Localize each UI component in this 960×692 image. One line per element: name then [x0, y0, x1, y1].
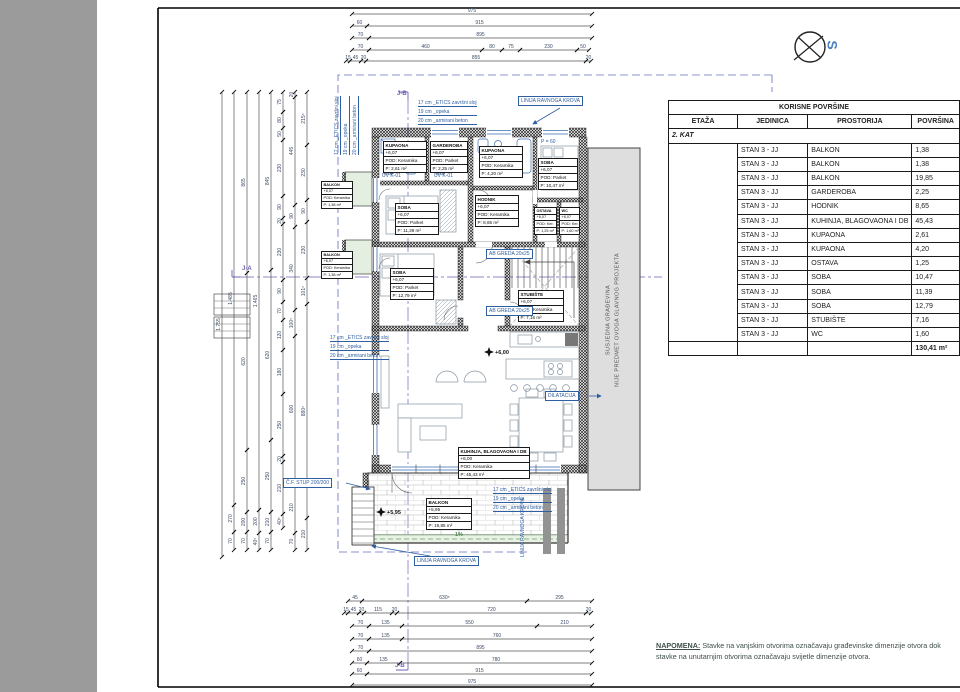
room-label: BALKON+5,95POD: KeramikaP: 19,85 m²: [426, 498, 472, 530]
callout-box: DILATACIJA: [545, 391, 579, 401]
north-letter: S: [825, 40, 841, 49]
room-label: SOBA+6,07POD: ParketP: 11,39 m²: [395, 203, 439, 235]
room-label: OSTAVA+6,07POD: Ker.P: 1,25 m²: [534, 207, 557, 235]
room-label: SOBA+6,07POD: ParketP: 12,79 m²: [390, 268, 434, 300]
neighbor-line2: NIJE PREDMET OVOGA GLAVNOG PROJEKTA: [614, 253, 623, 387]
page: 9756091570895704608075230501545208552045…: [0, 0, 960, 692]
room-label: GARDEROBA+6,07POD: ParketP: 2,25 m²: [430, 141, 468, 173]
callout-text: 17 cm _ETICS završni sloj19 cm _opeka20 …: [493, 487, 552, 514]
callout-box: AB GREDA 20x25: [486, 306, 533, 316]
floor-section-row: 2. KAT: [669, 129, 960, 143]
note: NAPOMENA: Stavke na vanjskim otvorima oz…: [656, 640, 956, 662]
callout-box: LINIJA RAVNOGA KROVA: [414, 556, 479, 566]
col-etaza: ETAŽA: [669, 115, 738, 129]
room-label: BALKON+6,07POD: KeramikaP: 1,38 m²: [321, 251, 353, 279]
callout-box: LINIJA RAVNOGA KROVA: [518, 96, 583, 106]
room-label: BALKON+6,07POD: KeramikaP: 1,38 m²: [321, 181, 353, 209]
room-label: SOBA+6,07POD: ParketP: 10,47 m²: [538, 158, 578, 190]
callout-text: 17 cm _ETICS završni sloj19 cm _opeka20 …: [330, 335, 389, 362]
room-label: KUPAONA+6,07POD: KeramikaP: 4,20 m²: [479, 146, 523, 178]
callout-box: AB GREDA 20x25: [486, 249, 533, 259]
room-label: HODNIK+6,07POD: KeramikaP: 8,65 m²: [475, 195, 519, 227]
areas-table: KORISNE POVRŠINE ETAŽA JEDINICA PROSTORI…: [668, 100, 960, 356]
callout-text: 17 cm _ETICS završni sloj19 cm _opeka20 …: [334, 96, 361, 155]
neighbor-building-label: SUSJEDNA GRAĐEVINA NIJE PREDMET OVOGA GL…: [588, 160, 640, 480]
note-label: NAPOMENA:: [656, 641, 700, 650]
table-total-row: 130,41 m²: [669, 342, 960, 356]
section-marker: J-B: [395, 663, 405, 669]
room-label: WC+6,07POD: Ker.P: 1,60 m²: [559, 207, 580, 235]
neighbor-line1: SUSJEDNA GRAĐEVINA: [605, 253, 614, 387]
table-title: KORISNE POVRŠINE: [669, 101, 960, 115]
callout-text: UV K-01: [434, 173, 453, 179]
col-povrsina: POVRŠINA: [912, 115, 960, 129]
total-area: 130,41 m²: [912, 342, 960, 356]
table-header-row: ETAŽA JEDINICA PROSTORIJA POVRŠINA: [669, 115, 960, 129]
callout-text: UV K-01: [382, 173, 401, 179]
table-row: STAN 3 - JJBALKON1,38: [669, 143, 960, 157]
section-marker: J-B: [397, 91, 407, 97]
col-prostorija: PROSTORIJA: [808, 115, 912, 129]
slope-label: 1%: [455, 532, 463, 538]
col-jedinica: JEDINICA: [737, 115, 807, 129]
room-label: KUPAONA+6,07POD: KeramikaP: 2,61 m²: [383, 141, 427, 173]
callout-text: P = 60: [541, 139, 556, 145]
callout-text: 17 cm _ETICS završni sloj19 cm _opeka20 …: [418, 100, 477, 127]
callout-box: Č.F. STUP 200/200: [283, 478, 332, 488]
room-label: KUHINJA, BLAGOVAONA I DB+6,00POD: Kerami…: [458, 447, 530, 479]
section-marker: J-A: [242, 266, 252, 272]
